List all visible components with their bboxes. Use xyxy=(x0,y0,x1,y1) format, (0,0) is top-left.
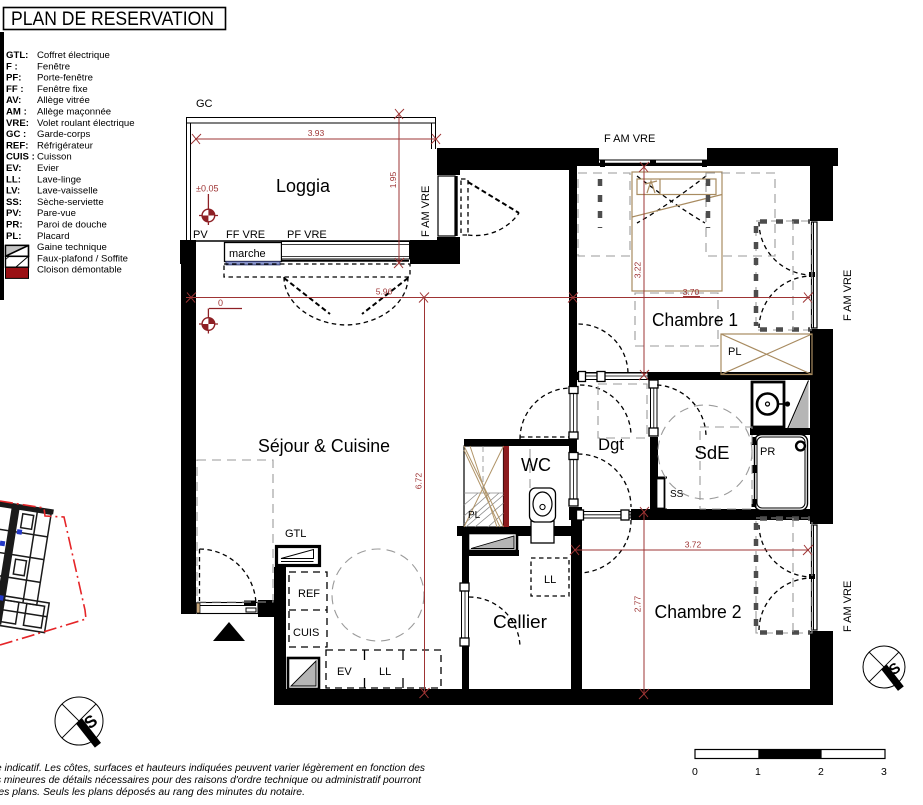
svg-text:PL:: PL: xyxy=(6,231,21,242)
svg-text:Faux-plafond / Soffite: Faux-plafond / Soffite xyxy=(37,253,128,264)
svg-text:Porte-fenêtre: Porte-fenêtre xyxy=(37,73,93,84)
svg-text:GTL:: GTL: xyxy=(6,50,28,61)
svg-text:PV:: PV: xyxy=(6,208,21,219)
svg-text:EV: EV xyxy=(337,666,352,678)
svg-text:5.96: 5.96 xyxy=(376,287,393,297)
svg-text:marche: marche xyxy=(229,248,266,260)
svg-text:Séjour & Cuisine: Séjour & Cuisine xyxy=(258,435,390,456)
svg-text:3.93: 3.93 xyxy=(308,128,325,138)
svg-text:LL: LL xyxy=(379,666,391,678)
svg-text:PV: PV xyxy=(193,229,208,241)
svg-text:GC: GC xyxy=(196,98,213,110)
svg-text:PL: PL xyxy=(728,346,741,358)
svg-text:3.70: 3.70 xyxy=(683,287,700,297)
svg-text:PR: PR xyxy=(760,446,775,458)
svg-text:±0.05: ±0.05 xyxy=(196,184,218,194)
svg-text:PR:: PR: xyxy=(6,220,23,231)
svg-text:e indicatif. Les côtes, surfac: e indicatif. Les côtes, surfaces et haut… xyxy=(0,763,425,774)
svg-text:F AM VRE: F AM VRE xyxy=(842,581,854,632)
svg-text:Chambre 2: Chambre 2 xyxy=(655,601,742,622)
svg-text:SS:: SS: xyxy=(6,197,22,208)
svg-text:F :: F : xyxy=(6,61,18,72)
svg-text:Evier: Evier xyxy=(37,163,60,174)
svg-text:F AM VRE: F AM VRE xyxy=(842,270,854,321)
svg-text:GC :: GC : xyxy=(6,129,26,140)
svg-text:3: 3 xyxy=(881,766,887,778)
svg-text:Gaine technique: Gaine technique xyxy=(37,242,107,253)
svg-text:Pare-vue: Pare-vue xyxy=(37,208,76,219)
svg-text:Cuisson: Cuisson xyxy=(37,152,72,163)
svg-text:Lave-vaisselle: Lave-vaisselle xyxy=(37,186,98,197)
svg-text:Cellier: Cellier xyxy=(493,611,547,632)
svg-text:3.22: 3.22 xyxy=(633,261,643,278)
svg-text:Garde-corps: Garde-corps xyxy=(37,129,91,140)
svg-text:6.72: 6.72 xyxy=(414,472,424,489)
svg-text:Allège vitrée: Allège vitrée xyxy=(37,95,90,106)
svg-text:AM :: AM : xyxy=(6,107,27,118)
svg-text:1.95: 1.95 xyxy=(388,171,398,188)
svg-text:Réfrigérateur: Réfrigérateur xyxy=(37,140,94,151)
svg-text:FF :: FF : xyxy=(6,84,24,95)
svg-text:REF: REF xyxy=(298,588,320,600)
svg-text:Paroi de douche: Paroi de douche xyxy=(37,220,107,231)
svg-text:3.72: 3.72 xyxy=(685,540,702,550)
svg-text:F AM VRE: F AM VRE xyxy=(420,186,432,237)
svg-text:Dgt: Dgt xyxy=(598,436,624,454)
svg-text:PL: PL xyxy=(468,510,481,521)
svg-text:Volet roulant électrique: Volet roulant électrique xyxy=(37,118,135,129)
svg-text:Loggia: Loggia xyxy=(276,175,331,196)
svg-text:Coffret électrique: Coffret électrique xyxy=(37,50,110,61)
svg-text:1: 1 xyxy=(755,766,761,778)
svg-text:Fenêtre: Fenêtre xyxy=(37,61,70,72)
svg-text:FF VRE: FF VRE xyxy=(226,229,265,241)
svg-text:Lave-linge: Lave-linge xyxy=(37,174,81,185)
svg-text:2.77: 2.77 xyxy=(633,595,643,612)
svg-text:GTL: GTL xyxy=(285,528,306,540)
svg-text:les plans. Seuls les plans dép: les plans. Seuls les plans déposés au ra… xyxy=(0,787,305,798)
svg-text:CUIS: CUIS xyxy=(293,627,319,639)
svg-text:Placard: Placard xyxy=(37,231,70,242)
svg-text:CUIS :: CUIS : xyxy=(6,152,35,163)
svg-text:0: 0 xyxy=(692,766,698,778)
svg-text:PF:: PF: xyxy=(6,73,21,84)
svg-text:LL:: LL: xyxy=(6,174,21,185)
svg-text:LV:: LV: xyxy=(6,186,20,197)
svg-text:Cloison démontable: Cloison démontable xyxy=(37,265,122,276)
svg-text:EV:: EV: xyxy=(6,163,21,174)
svg-text:VRE:: VRE: xyxy=(6,118,29,129)
svg-text:SS: SS xyxy=(670,489,684,500)
svg-text:REF:: REF: xyxy=(6,140,28,151)
svg-text:LL: LL xyxy=(544,574,556,586)
svg-text:Sèche-serviette: Sèche-serviette xyxy=(37,197,104,208)
svg-text:Fenêtre fixe: Fenêtre fixe xyxy=(37,84,88,95)
svg-text:PF VRE: PF VRE xyxy=(287,229,327,241)
svg-text:AV:: AV: xyxy=(6,95,21,106)
svg-text:2: 2 xyxy=(818,766,824,778)
svg-text:WC: WC xyxy=(521,454,551,475)
svg-text:0: 0 xyxy=(218,298,223,308)
svg-text:s mineures de détails nécessai: s mineures de détails nécessaires pour d… xyxy=(0,775,422,786)
svg-text:PLAN DE RESERVATION: PLAN DE RESERVATION xyxy=(11,9,214,30)
svg-text:SdE: SdE xyxy=(695,442,730,463)
svg-text:F AM VRE: F AM VRE xyxy=(604,133,655,145)
svg-text:Chambre 1: Chambre 1 xyxy=(652,309,738,330)
svg-text:Allège maçonnée: Allège maçonnée xyxy=(37,107,111,118)
